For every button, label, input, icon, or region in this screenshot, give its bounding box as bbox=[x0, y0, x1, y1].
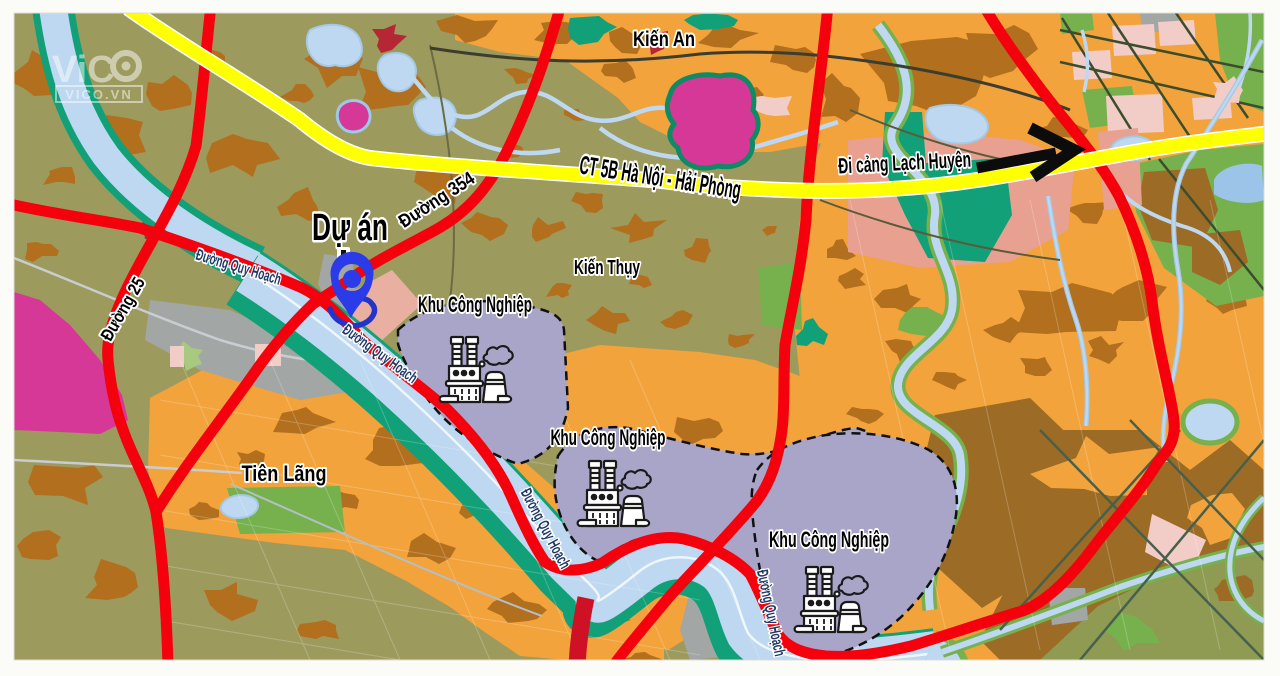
svg-text:Kiến Thụy: Kiến Thụy bbox=[574, 257, 641, 279]
svg-text:ViC: ViC bbox=[52, 49, 115, 91]
svg-text:Khu Công Nghiệp: Khu Công Nghiệp bbox=[551, 425, 666, 450]
svg-text:Tiên Lãng: Tiên Lãng bbox=[242, 461, 327, 486]
svg-text:Dự án: Dự án bbox=[312, 207, 388, 249]
svg-text:VICO.VN: VICO.VN bbox=[65, 87, 132, 102]
svg-text:Khu Công Nghiệp: Khu Công Nghiệp bbox=[418, 292, 532, 317]
svg-text:Khu Công Nghiệp: Khu Công Nghiệp bbox=[769, 527, 889, 552]
svg-text:Kiến An: Kiến An bbox=[633, 28, 695, 51]
